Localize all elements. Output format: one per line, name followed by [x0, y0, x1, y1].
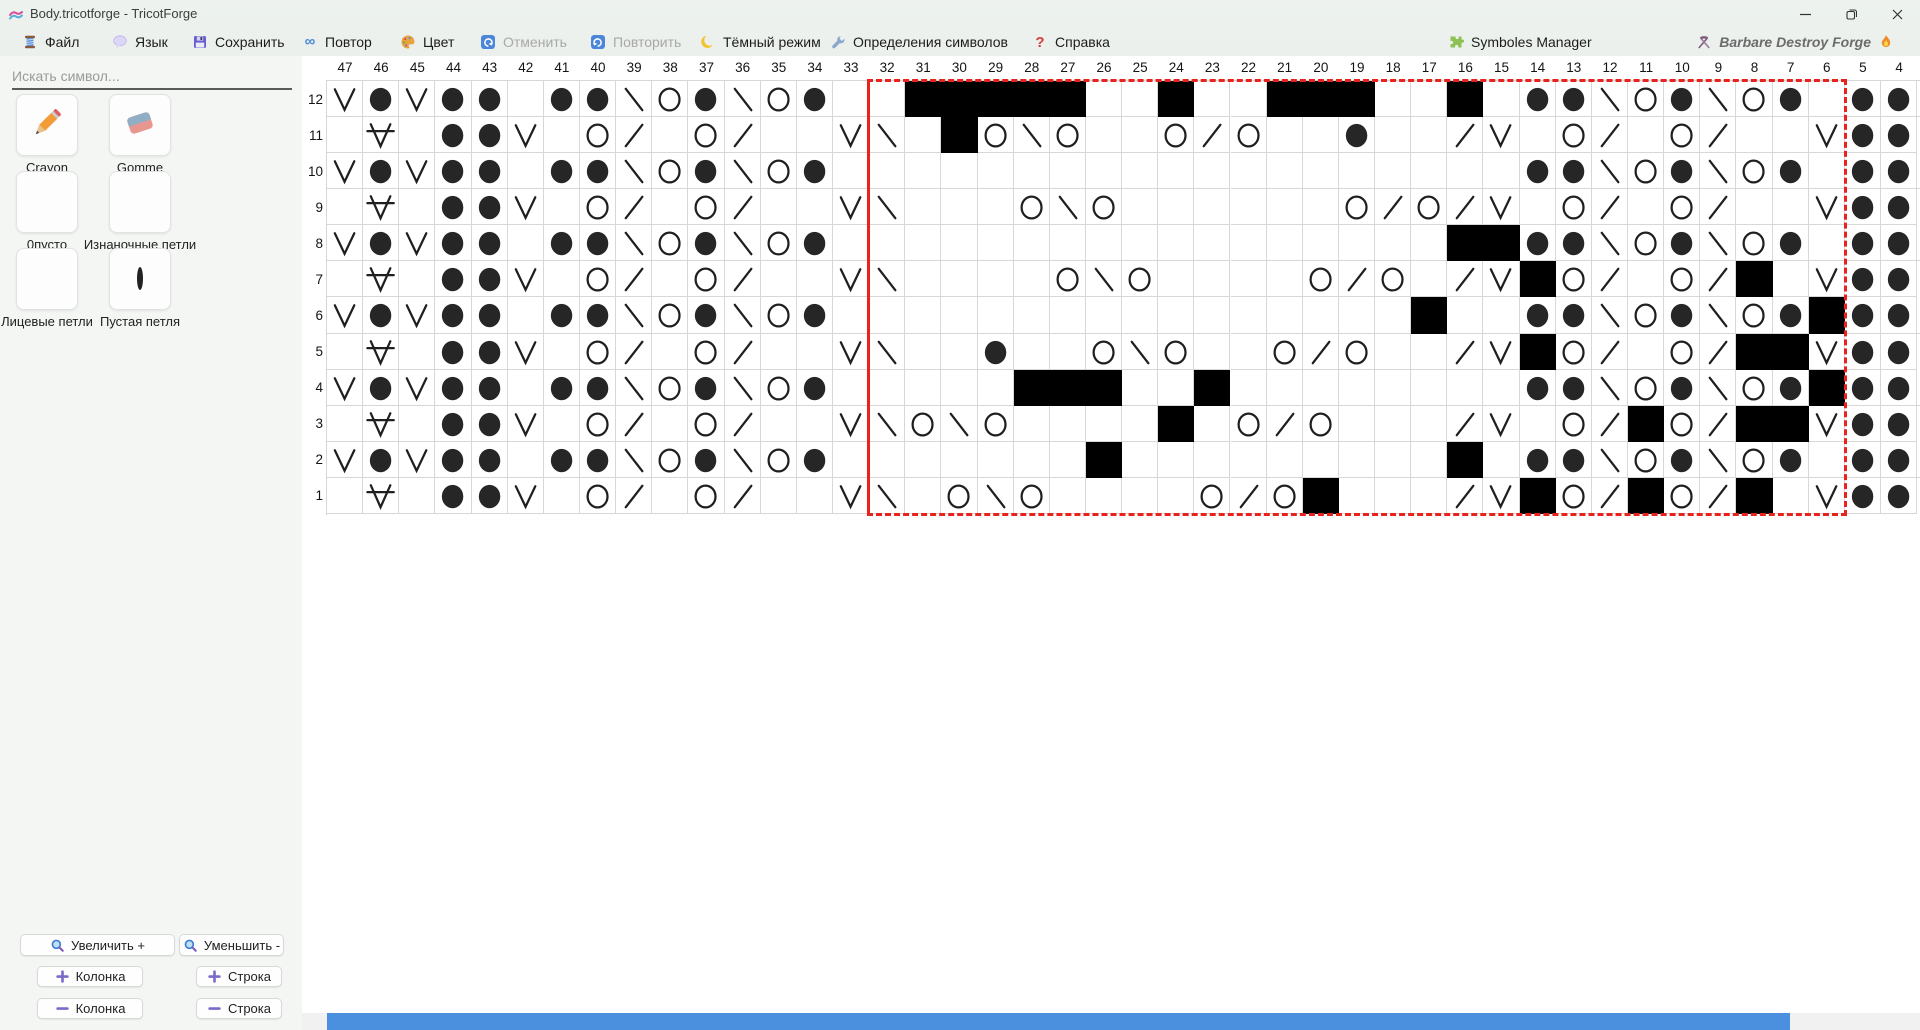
- chart-cell[interactable]: [905, 189, 941, 225]
- chart-cell[interactable]: [941, 153, 977, 189]
- chart-cell[interactable]: [1014, 334, 1050, 370]
- chart-cell[interactable]: [1845, 334, 1881, 370]
- chart-cell[interactable]: [725, 370, 761, 406]
- chart-cell[interactable]: [1736, 297, 1772, 333]
- chart-cell[interactable]: [1375, 442, 1411, 478]
- chart-cell[interactable]: [869, 370, 905, 406]
- chart-cell[interactable]: [399, 370, 435, 406]
- chart-cell[interactable]: [1700, 117, 1736, 153]
- chart-cell[interactable]: [1736, 153, 1772, 189]
- chart-cell[interactable]: [652, 334, 688, 370]
- chart-cell[interactable]: [652, 261, 688, 297]
- chart-cell[interactable]: [978, 478, 1014, 514]
- chart-cell[interactable]: [869, 478, 905, 514]
- chart-cell[interactable]: [1628, 442, 1664, 478]
- tool-empty[interactable]: [16, 171, 78, 233]
- chart-cell[interactable]: [363, 297, 399, 333]
- chart-cell[interactable]: [1628, 225, 1664, 261]
- chart-cell[interactable]: [1628, 478, 1664, 514]
- chart-cell[interactable]: [1520, 261, 1556, 297]
- chart-cell[interactable]: [1194, 406, 1230, 442]
- chart-cell[interactable]: [1736, 370, 1772, 406]
- chart-cell[interactable]: [327, 81, 363, 117]
- chart-cell[interactable]: [905, 261, 941, 297]
- chart-cell[interactable]: [327, 370, 363, 406]
- chart-cell[interactable]: [688, 225, 724, 261]
- chart-cell[interactable]: [1483, 225, 1519, 261]
- chart-cell[interactable]: [1520, 334, 1556, 370]
- chart-cell[interactable]: [978, 334, 1014, 370]
- chart-cell[interactable]: [1086, 406, 1122, 442]
- chart-cell[interactable]: [1339, 478, 1375, 514]
- chart-cell[interactable]: [472, 153, 508, 189]
- chart-cell[interactable]: [1592, 153, 1628, 189]
- chart-cell[interactable]: [725, 117, 761, 153]
- chart-cell[interactable]: [941, 117, 977, 153]
- chart-cell[interactable]: [363, 442, 399, 478]
- chart-cell[interactable]: [1736, 225, 1772, 261]
- chart-cell[interactable]: [1520, 406, 1556, 442]
- chart-cell[interactable]: [327, 261, 363, 297]
- chart-cell[interactable]: [941, 370, 977, 406]
- chart-cell[interactable]: [1375, 478, 1411, 514]
- chart-cell[interactable]: [1303, 117, 1339, 153]
- chart-cell[interactable]: [797, 478, 833, 514]
- menu-item-help[interactable]: ?Справка: [1032, 30, 1110, 54]
- chart-cell[interactable]: [1664, 153, 1700, 189]
- chart-cell[interactable]: [761, 117, 797, 153]
- menu-item-repeat[interactable]: ∞Повтор: [302, 30, 372, 54]
- chart-cell[interactable]: [1086, 442, 1122, 478]
- chart-cell[interactable]: [905, 370, 941, 406]
- chart-cell[interactable]: [978, 117, 1014, 153]
- chart-cell[interactable]: [1520, 478, 1556, 514]
- chart-cell[interactable]: [1447, 406, 1483, 442]
- chart-cell[interactable]: [1339, 117, 1375, 153]
- chart-cell[interactable]: [1483, 153, 1519, 189]
- chart-cell[interactable]: [978, 153, 1014, 189]
- chart-cell[interactable]: [1339, 370, 1375, 406]
- menu-item-undo[interactable]: Отменить: [480, 30, 567, 54]
- chart-cell[interactable]: [616, 189, 652, 225]
- chart-cell[interactable]: [797, 225, 833, 261]
- chart-cell[interactable]: [1267, 297, 1303, 333]
- chart-cell[interactable]: [1267, 334, 1303, 370]
- chart-cell[interactable]: [399, 442, 435, 478]
- chart-cell[interactable]: [869, 117, 905, 153]
- chart-cell[interactable]: [1267, 478, 1303, 514]
- chart-cell[interactable]: [1122, 406, 1158, 442]
- chart-cell[interactable]: [1194, 297, 1230, 333]
- chart-cell[interactable]: [1845, 117, 1881, 153]
- chart-cell[interactable]: [688, 117, 724, 153]
- chart-cell[interactable]: [652, 442, 688, 478]
- chart-cell[interactable]: [1411, 370, 1447, 406]
- chart-cell[interactable]: [1845, 225, 1881, 261]
- chart-cell[interactable]: [508, 225, 544, 261]
- chart-cell[interactable]: [725, 225, 761, 261]
- chart-cell[interactable]: [472, 370, 508, 406]
- chart-cell[interactable]: [1194, 225, 1230, 261]
- chart-cell[interactable]: [1267, 189, 1303, 225]
- chart-cell[interactable]: [869, 225, 905, 261]
- chart-cell[interactable]: [1700, 370, 1736, 406]
- chart-cell[interactable]: [1700, 153, 1736, 189]
- chart-cell[interactable]: [833, 81, 869, 117]
- chart-cell[interactable]: [363, 81, 399, 117]
- chart-cell[interactable]: [1303, 153, 1339, 189]
- chart-cell[interactable]: [941, 406, 977, 442]
- chart-cell[interactable]: [544, 297, 580, 333]
- tool-empty-loop[interactable]: [109, 248, 171, 310]
- chart-cell[interactable]: [941, 225, 977, 261]
- chart-cell[interactable]: [399, 261, 435, 297]
- chart-cell[interactable]: [833, 261, 869, 297]
- chart-cell[interactable]: [1050, 334, 1086, 370]
- chart-cell[interactable]: [1267, 406, 1303, 442]
- chart-cell[interactable]: [1050, 442, 1086, 478]
- chart-cell[interactable]: [1809, 261, 1845, 297]
- chart-cell[interactable]: [1592, 261, 1628, 297]
- chart-cell[interactable]: [1736, 478, 1772, 514]
- chart-cell[interactable]: [1375, 117, 1411, 153]
- chart-cell[interactable]: [1231, 442, 1267, 478]
- chart-cell[interactable]: [833, 334, 869, 370]
- chart-cell[interactable]: [580, 406, 616, 442]
- chart-cell[interactable]: [1411, 334, 1447, 370]
- chart-cell[interactable]: [472, 478, 508, 514]
- chart-cell[interactable]: [1050, 225, 1086, 261]
- chart-cell[interactable]: [580, 117, 616, 153]
- chart-cell[interactable]: [797, 297, 833, 333]
- chart-cell[interactable]: [472, 225, 508, 261]
- chart-cell[interactable]: [1194, 189, 1230, 225]
- chart-cell[interactable]: [1158, 334, 1194, 370]
- chart-cell[interactable]: [1086, 370, 1122, 406]
- chart-cell[interactable]: [1194, 370, 1230, 406]
- chart-cell[interactable]: [652, 225, 688, 261]
- chart-cell[interactable]: [1086, 117, 1122, 153]
- chart-cell[interactable]: [1050, 189, 1086, 225]
- chart-cell[interactable]: [1809, 297, 1845, 333]
- chart-cell[interactable]: [508, 261, 544, 297]
- chart-cell[interactable]: [1483, 117, 1519, 153]
- chart-cell[interactable]: [1339, 189, 1375, 225]
- chart-cell[interactable]: [327, 225, 363, 261]
- chart-cell[interactable]: [1194, 334, 1230, 370]
- menu-item-color[interactable]: Цвет: [400, 30, 454, 54]
- chart-cell[interactable]: [327, 297, 363, 333]
- chart-cell[interactable]: [905, 442, 941, 478]
- chart-cell[interactable]: [1628, 334, 1664, 370]
- zoom-in-button[interactable]: Увеличить +: [20, 934, 175, 956]
- chart-cell[interactable]: [1556, 117, 1592, 153]
- chart-cell[interactable]: [761, 406, 797, 442]
- remove-row-button[interactable]: Строка: [196, 998, 282, 1019]
- chart-cell[interactable]: [1231, 117, 1267, 153]
- chart-cell[interactable]: [472, 81, 508, 117]
- chart-cell[interactable]: [1086, 225, 1122, 261]
- chart-cell[interactable]: [1592, 478, 1628, 514]
- chart-cell[interactable]: [1809, 225, 1845, 261]
- chart-cell[interactable]: [1014, 370, 1050, 406]
- chart-cell[interactable]: [435, 117, 471, 153]
- chart-cell[interactable]: [1845, 297, 1881, 333]
- chart-cell[interactable]: [978, 261, 1014, 297]
- chart-cell[interactable]: [1339, 442, 1375, 478]
- chart-cell[interactable]: [1700, 297, 1736, 333]
- chart-cell[interactable]: [1267, 261, 1303, 297]
- chart-cell[interactable]: [1556, 297, 1592, 333]
- chart-cell[interactable]: [1447, 370, 1483, 406]
- chart-cell[interactable]: [833, 297, 869, 333]
- chart-cell[interactable]: [1881, 225, 1917, 261]
- chart-cell[interactable]: [905, 478, 941, 514]
- chart-cell[interactable]: [1773, 297, 1809, 333]
- chart-cell[interactable]: [941, 261, 977, 297]
- chart-cell[interactable]: [1050, 153, 1086, 189]
- chart-cell[interactable]: [1520, 370, 1556, 406]
- chart-cell[interactable]: [1483, 406, 1519, 442]
- chart-cell[interactable]: [1809, 370, 1845, 406]
- chart-cell[interactable]: [1086, 189, 1122, 225]
- chart-cell[interactable]: [1881, 297, 1917, 333]
- chart-cell[interactable]: [435, 153, 471, 189]
- chart-cell[interactable]: [1231, 225, 1267, 261]
- chart-cell[interactable]: [1845, 370, 1881, 406]
- chart-cell[interactable]: [1411, 297, 1447, 333]
- chart-cell[interactable]: [1628, 81, 1664, 117]
- chart-cell[interactable]: [1592, 334, 1628, 370]
- chart-cell[interactable]: [544, 370, 580, 406]
- chart-cell[interactable]: [1700, 261, 1736, 297]
- chart-cell[interactable]: [327, 478, 363, 514]
- chart-cell[interactable]: [327, 442, 363, 478]
- chart-cell[interactable]: [1122, 478, 1158, 514]
- chart-cell[interactable]: [1231, 261, 1267, 297]
- chart-cell[interactable]: [1158, 478, 1194, 514]
- chart-cell[interactable]: [1736, 117, 1772, 153]
- chart-cell[interactable]: [1014, 153, 1050, 189]
- chart-cell[interactable]: [1339, 261, 1375, 297]
- chart-cell[interactable]: [616, 406, 652, 442]
- chart-cell[interactable]: [580, 297, 616, 333]
- chart-cell[interactable]: [1628, 297, 1664, 333]
- chart-cell[interactable]: [1339, 297, 1375, 333]
- chart-cell[interactable]: [761, 225, 797, 261]
- chart-cell[interactable]: [1158, 370, 1194, 406]
- tool-crayon[interactable]: [16, 94, 78, 156]
- chart-cell[interactable]: [652, 297, 688, 333]
- chart-cell[interactable]: [1375, 297, 1411, 333]
- horizontal-scrollbar-thumb[interactable]: [327, 1013, 1790, 1030]
- chart-cell[interactable]: [1520, 153, 1556, 189]
- chart-cell[interactable]: [580, 153, 616, 189]
- chart-cell[interactable]: [1122, 370, 1158, 406]
- chart-cell[interactable]: [327, 406, 363, 442]
- chart-cell[interactable]: [978, 442, 1014, 478]
- chart-cell[interactable]: [1809, 189, 1845, 225]
- chart-cell[interactable]: [978, 297, 1014, 333]
- chart-cell[interactable]: [761, 370, 797, 406]
- chart-cell[interactable]: [363, 334, 399, 370]
- chart-cell[interactable]: [833, 442, 869, 478]
- chart-cell[interactable]: [1014, 297, 1050, 333]
- chart-cell[interactable]: [688, 81, 724, 117]
- chart-cell[interactable]: [1158, 225, 1194, 261]
- chart-cell[interactable]: [1881, 406, 1917, 442]
- chart-cell[interactable]: [508, 297, 544, 333]
- chart-cell[interactable]: [1773, 117, 1809, 153]
- chart-cell[interactable]: [978, 81, 1014, 117]
- chart-cell[interactable]: [1845, 478, 1881, 514]
- chart-cell[interactable]: [1086, 297, 1122, 333]
- chart-cell[interactable]: [797, 189, 833, 225]
- chart-cell[interactable]: [1375, 225, 1411, 261]
- chart-cell[interactable]: [1809, 442, 1845, 478]
- chart-cell[interactable]: [1664, 261, 1700, 297]
- chart-cell[interactable]: [652, 478, 688, 514]
- chart-cell[interactable]: [725, 297, 761, 333]
- chart-cell[interactable]: [1773, 189, 1809, 225]
- chart-cell[interactable]: [833, 153, 869, 189]
- chart-cell[interactable]: [1592, 225, 1628, 261]
- chart-cell[interactable]: [1158, 297, 1194, 333]
- add-row-button[interactable]: Строка: [196, 966, 282, 987]
- chart-cell[interactable]: [1628, 189, 1664, 225]
- chart-cell[interactable]: [616, 225, 652, 261]
- chart-cell[interactable]: [1086, 334, 1122, 370]
- chart-cell[interactable]: [1267, 442, 1303, 478]
- chart-cell[interactable]: [1411, 442, 1447, 478]
- chart-cell[interactable]: [797, 442, 833, 478]
- chart-cell[interactable]: [1411, 189, 1447, 225]
- chart-cell[interactable]: [761, 478, 797, 514]
- chart-cell[interactable]: [652, 406, 688, 442]
- chart-cell[interactable]: [1339, 406, 1375, 442]
- chart-cell[interactable]: [544, 334, 580, 370]
- chart-cell[interactable]: [1773, 81, 1809, 117]
- chart-cell[interactable]: [1267, 370, 1303, 406]
- chart-cell[interactable]: [1411, 225, 1447, 261]
- chart-cell[interactable]: [363, 478, 399, 514]
- chart-cell[interactable]: [1447, 189, 1483, 225]
- chart-cell[interactable]: [363, 261, 399, 297]
- chart-cell[interactable]: [1411, 153, 1447, 189]
- chart-cell[interactable]: [1231, 334, 1267, 370]
- chart-cell[interactable]: [1267, 153, 1303, 189]
- chart-cell[interactable]: [363, 189, 399, 225]
- chart-cell[interactable]: [1194, 153, 1230, 189]
- chart-cell[interactable]: [941, 81, 977, 117]
- chart-cell[interactable]: [1447, 261, 1483, 297]
- chart-cell[interactable]: [435, 189, 471, 225]
- chart-cell[interactable]: [616, 370, 652, 406]
- chart-cell[interactable]: [544, 406, 580, 442]
- minimize-button[interactable]: [1782, 0, 1828, 28]
- chart-cell[interactable]: [1520, 225, 1556, 261]
- chart-cell[interactable]: [1231, 81, 1267, 117]
- remove-column-button[interactable]: Колонка: [37, 998, 143, 1019]
- chart-cell[interactable]: [1447, 442, 1483, 478]
- chart-cell[interactable]: [1339, 334, 1375, 370]
- chart-cell[interactable]: [1231, 406, 1267, 442]
- chart-cell[interactable]: [652, 370, 688, 406]
- chart-cell[interactable]: [1411, 478, 1447, 514]
- chart-cell[interactable]: [1086, 81, 1122, 117]
- chart-cell[interactable]: [399, 297, 435, 333]
- chart-cell[interactable]: [363, 153, 399, 189]
- chart-cell[interactable]: [1664, 189, 1700, 225]
- chart-cell[interactable]: [1158, 189, 1194, 225]
- chart-cell[interactable]: [1158, 261, 1194, 297]
- chart-cell[interactable]: [435, 478, 471, 514]
- chart-cell[interactable]: [1303, 478, 1339, 514]
- chart-cell[interactable]: [399, 225, 435, 261]
- chart-cell[interactable]: [1122, 334, 1158, 370]
- chart-cell[interactable]: [1375, 370, 1411, 406]
- chart-cell[interactable]: [688, 370, 724, 406]
- chart-cell[interactable]: [1447, 225, 1483, 261]
- chart-cell[interactable]: [652, 189, 688, 225]
- chart-cell[interactable]: [363, 370, 399, 406]
- chart-cell[interactable]: [1014, 81, 1050, 117]
- chart-cell[interactable]: [1050, 81, 1086, 117]
- chart-cell[interactable]: [544, 189, 580, 225]
- chart-cell[interactable]: [580, 334, 616, 370]
- chart-cell[interactable]: [1231, 370, 1267, 406]
- chart-cell[interactable]: [1014, 261, 1050, 297]
- chart-cell[interactable]: [1881, 334, 1917, 370]
- chart-cell[interactable]: [1628, 370, 1664, 406]
- chart-cell[interactable]: [1303, 370, 1339, 406]
- chart-cell[interactable]: [544, 261, 580, 297]
- chart-cell[interactable]: [1231, 297, 1267, 333]
- chart-cell[interactable]: [1050, 117, 1086, 153]
- chart-cell[interactable]: [1411, 81, 1447, 117]
- chart-cell[interactable]: [761, 81, 797, 117]
- chart-cell[interactable]: [1014, 117, 1050, 153]
- chart-cell[interactable]: [580, 225, 616, 261]
- chart-cell[interactable]: [797, 370, 833, 406]
- chart-cell[interactable]: [1556, 189, 1592, 225]
- chart-cell[interactable]: [1736, 442, 1772, 478]
- chart-cell[interactable]: [544, 81, 580, 117]
- chart-cell[interactable]: [1375, 406, 1411, 442]
- chart-cell[interactable]: [688, 189, 724, 225]
- chart-cell[interactable]: [869, 297, 905, 333]
- zoom-out-button[interactable]: Уменьшить -: [179, 934, 284, 956]
- chart-cell[interactable]: [1845, 81, 1881, 117]
- chart-cell[interactable]: [616, 117, 652, 153]
- chart-cell[interactable]: [1664, 297, 1700, 333]
- chart-cell[interactable]: [1411, 117, 1447, 153]
- chart-cell[interactable]: [725, 189, 761, 225]
- chart-cell[interactable]: [869, 442, 905, 478]
- chart-cell[interactable]: [1809, 117, 1845, 153]
- chart-cell[interactable]: [435, 334, 471, 370]
- chart-cell[interactable]: [1664, 478, 1700, 514]
- chart-cell[interactable]: [1700, 334, 1736, 370]
- chart-cell[interactable]: [508, 117, 544, 153]
- chart-cell[interactable]: [616, 478, 652, 514]
- chart-cell[interactable]: [1556, 261, 1592, 297]
- chart-cell[interactable]: [905, 117, 941, 153]
- chart-cell[interactable]: [1520, 297, 1556, 333]
- tool-gomme[interactable]: [109, 94, 171, 156]
- menu-item-symbols-manager[interactable]: Symboles Manager: [1448, 30, 1592, 54]
- chart-cell[interactable]: [616, 334, 652, 370]
